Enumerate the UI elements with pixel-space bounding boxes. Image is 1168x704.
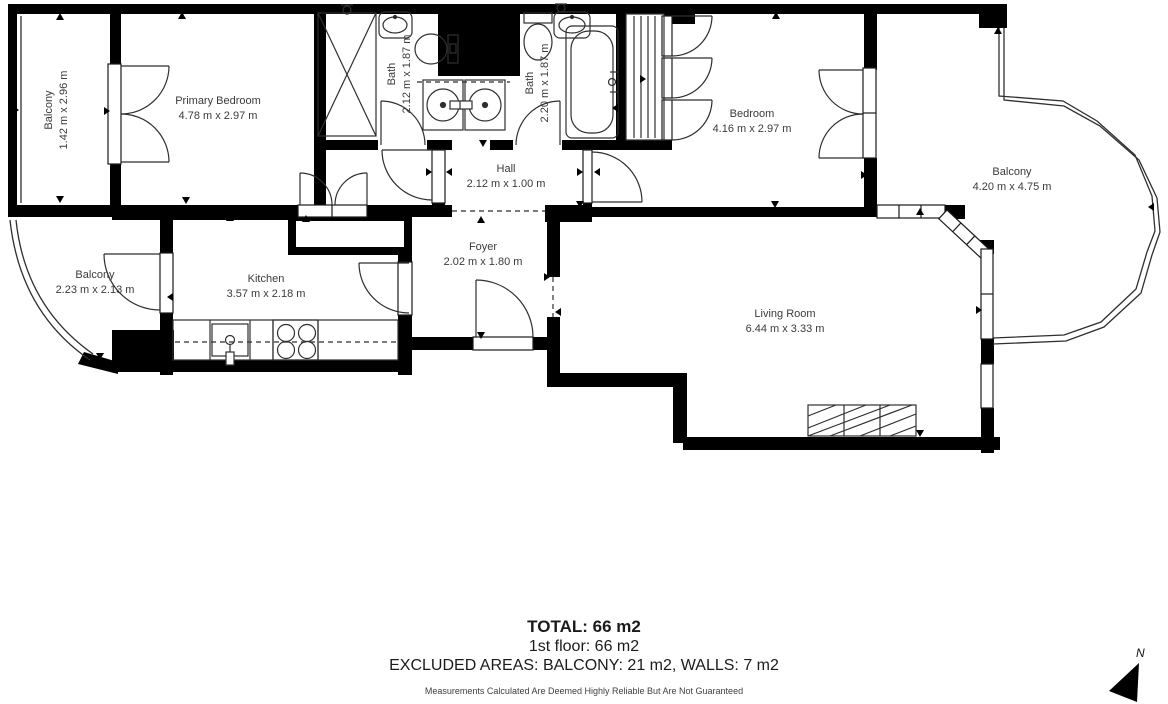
room-label-bath-2: Bath 2.20 m x 1.87 m [523, 44, 553, 123]
walls [8, 4, 1007, 453]
bedroom-entry-door [592, 152, 642, 202]
summary-footer: TOTAL: 66 m2 1st floor: 66 m2 EXCLUDED A… [0, 617, 1168, 696]
shower [318, 5, 376, 136]
bedroom-balcony-door [819, 70, 863, 158]
entrance-door [476, 280, 533, 337]
total-area-text: TOTAL: 66 m2 [0, 617, 1168, 637]
bathtub-icon [566, 26, 618, 138]
hall-closet-door [382, 150, 432, 200]
kitchen-sink-icon [212, 324, 248, 365]
living-room-right-window-1 [981, 249, 993, 339]
room-label-bath-1: Bath 2.12 m x 1.87 m [385, 35, 415, 114]
excluded-areas-text: EXCLUDED AREAS: BALCONY: 21 m2, WALLS: 7… [0, 657, 1168, 675]
room-label-balcony-right: Balcony 4.20 m x 4.75 m [973, 165, 1052, 195]
bedroom-wardrobe-doors [672, 16, 712, 140]
room-label-foyer: Foyer 2.02 m x 1.80 m [444, 240, 523, 270]
room-label-balcony-bottom-left: Balcony 2.23 m x 2.13 m [56, 268, 135, 298]
room-label-living-room: Living Room 6.44 m x 3.33 m [746, 307, 825, 337]
living-room-right-window-2 [981, 364, 993, 408]
radiator-icon [808, 405, 916, 436]
room-label-kitchen: Kitchen 3.57 m x 2.18 m [227, 272, 306, 302]
disclaimer-text: Measurements Calculated Are Deemed Highl… [0, 686, 1168, 696]
room-label-hall: Hall 2.12 m x 1.00 m [467, 162, 546, 192]
windows [877, 205, 993, 408]
primary-bedroom-balcony-door [121, 66, 169, 162]
bedroom-balcony-window [877, 205, 945, 218]
stove-icon [273, 320, 318, 360]
primary-bedroom-closet-doors [300, 173, 367, 205]
washer-icon-1 [423, 80, 463, 130]
floor-plan-page: Balcony 1.42 m x 2.96 m Primary Bedroom … [0, 0, 1168, 704]
floor-area-text: 1st floor: 66 m2 [0, 638, 1168, 656]
room-label-balcony-top-left: Balcony 1.42 m x 2.96 m [42, 71, 72, 150]
room-label-bedroom: Bedroom 4.16 m x 2.97 m [713, 107, 792, 137]
washer-icon-2 [460, 80, 505, 130]
kitchen-counter [173, 320, 398, 360]
room-label-primary-bedroom: Primary Bedroom 4.78 m x 2.97 m [175, 94, 261, 124]
north-label: N [1136, 646, 1145, 660]
bedroom-wardrobe [626, 14, 664, 140]
